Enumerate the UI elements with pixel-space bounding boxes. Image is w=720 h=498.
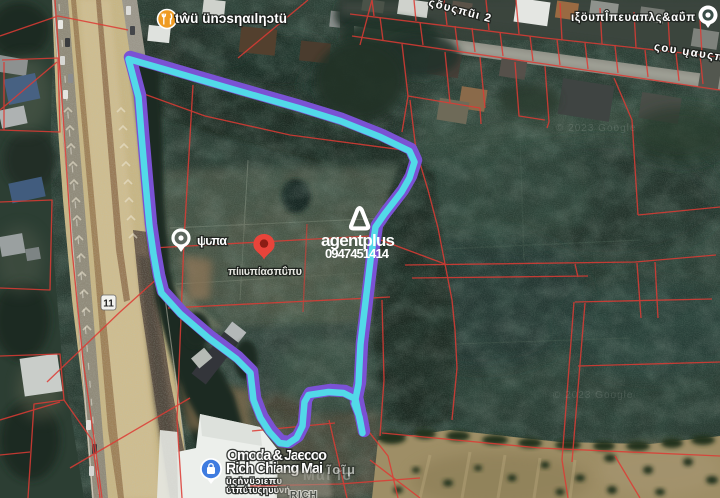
svg-text:tŵü ünɔsηαιlηɔtü: tŵü ünɔsηαιlηɔtü xyxy=(175,11,287,26)
svg-text:ψυπα: ψυπα xyxy=(197,234,227,248)
svg-text:πίιιυπίασπΰπυ: πίιιυπίασπΰπυ xyxy=(228,266,302,278)
svg-text:© 2023 Google: © 2023 Google xyxy=(553,390,633,401)
svg-text:ιξöυπÎπευαπλς&αΰπ: ιξöυπÎπευαπλς&αΰπ xyxy=(571,11,695,24)
svg-text:11: 11 xyxy=(103,299,114,310)
svg-text:0947451414: 0947451414 xyxy=(325,246,390,261)
svg-text:© 2023 Google: © 2023 Google xyxy=(556,123,636,134)
svg-text:RICH: RICH xyxy=(290,490,318,498)
